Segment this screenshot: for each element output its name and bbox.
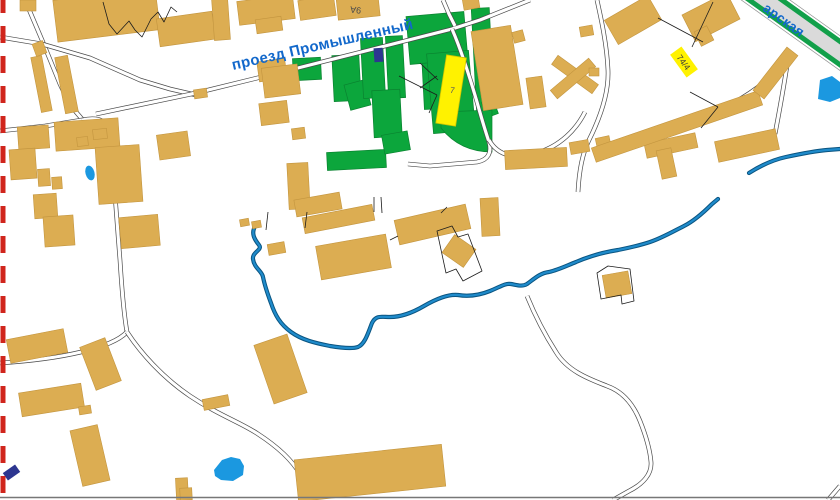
- map-viewport[interactable]: проезд Промышленный арская 9А 7 74/4: [0, 0, 840, 500]
- fence-line: [690, 92, 718, 107]
- building-footprint: [251, 220, 261, 228]
- pond: [818, 76, 840, 102]
- building-footprint: [95, 145, 143, 205]
- green-area: [327, 149, 387, 170]
- map-canvas[interactable]: проезд Промышленный арская 9А 7 74/4: [0, 0, 840, 500]
- building-footprint: [54, 118, 120, 151]
- building-footprint: [239, 218, 249, 226]
- building-footprint: [579, 25, 594, 37]
- building-footprint: [602, 271, 632, 298]
- building-footprint: [37, 169, 50, 187]
- building-footprint: [442, 235, 476, 268]
- pond: [214, 457, 244, 481]
- building-footprint: [267, 242, 286, 256]
- building-footprint: [298, 0, 336, 20]
- fence-line: [390, 236, 398, 240]
- building-footprint: [119, 214, 161, 248]
- roads-layer: [0, 0, 840, 500]
- pond: [84, 165, 97, 182]
- building-footprint: [254, 334, 307, 404]
- building-footprint: [294, 444, 446, 500]
- building-footprint: [53, 0, 160, 42]
- building-footprint: [714, 129, 779, 162]
- building-footprint: [17, 125, 50, 150]
- building-footprint: [526, 76, 546, 109]
- building-footprint: [77, 136, 89, 146]
- building-footprint: [604, 0, 661, 45]
- building-footprint: [31, 55, 52, 112]
- green-area: [382, 131, 411, 154]
- building-footprint: [43, 215, 75, 247]
- building-footprint: [505, 147, 568, 169]
- building-footprint: [291, 127, 305, 140]
- road: [527, 296, 651, 500]
- building-label-9a: 9А: [350, 4, 362, 15]
- building-footprint: [156, 11, 215, 47]
- building-footprint: [212, 0, 231, 41]
- building-footprint: [753, 47, 798, 99]
- building-footprint: [261, 64, 300, 98]
- building-label-74-4: 74/4: [670, 47, 698, 78]
- navy-building: [374, 48, 384, 63]
- building-footprint: [259, 100, 289, 125]
- building-footprint: [156, 131, 190, 160]
- building-footprint: [78, 405, 91, 415]
- fence-line: [381, 197, 382, 213]
- fence-line: [266, 212, 268, 230]
- building-footprint: [569, 139, 590, 154]
- road: [527, 296, 651, 500]
- building-footprint: [19, 383, 85, 417]
- building-footprint: [9, 148, 37, 180]
- building-footprint: [20, 0, 36, 11]
- building-footprint: [193, 88, 207, 99]
- building-footprint: [80, 338, 122, 391]
- green-area: [372, 89, 402, 137]
- building-footprint: [512, 30, 525, 43]
- building-footprint: [70, 425, 110, 487]
- building-footprint: [316, 234, 392, 280]
- building-footprint: [33, 193, 58, 219]
- building-footprint: [589, 68, 599, 76]
- building-footprint: [52, 177, 63, 190]
- building-footprint: [93, 128, 108, 139]
- building-footprint: [480, 198, 500, 237]
- building-footprint: [202, 395, 230, 411]
